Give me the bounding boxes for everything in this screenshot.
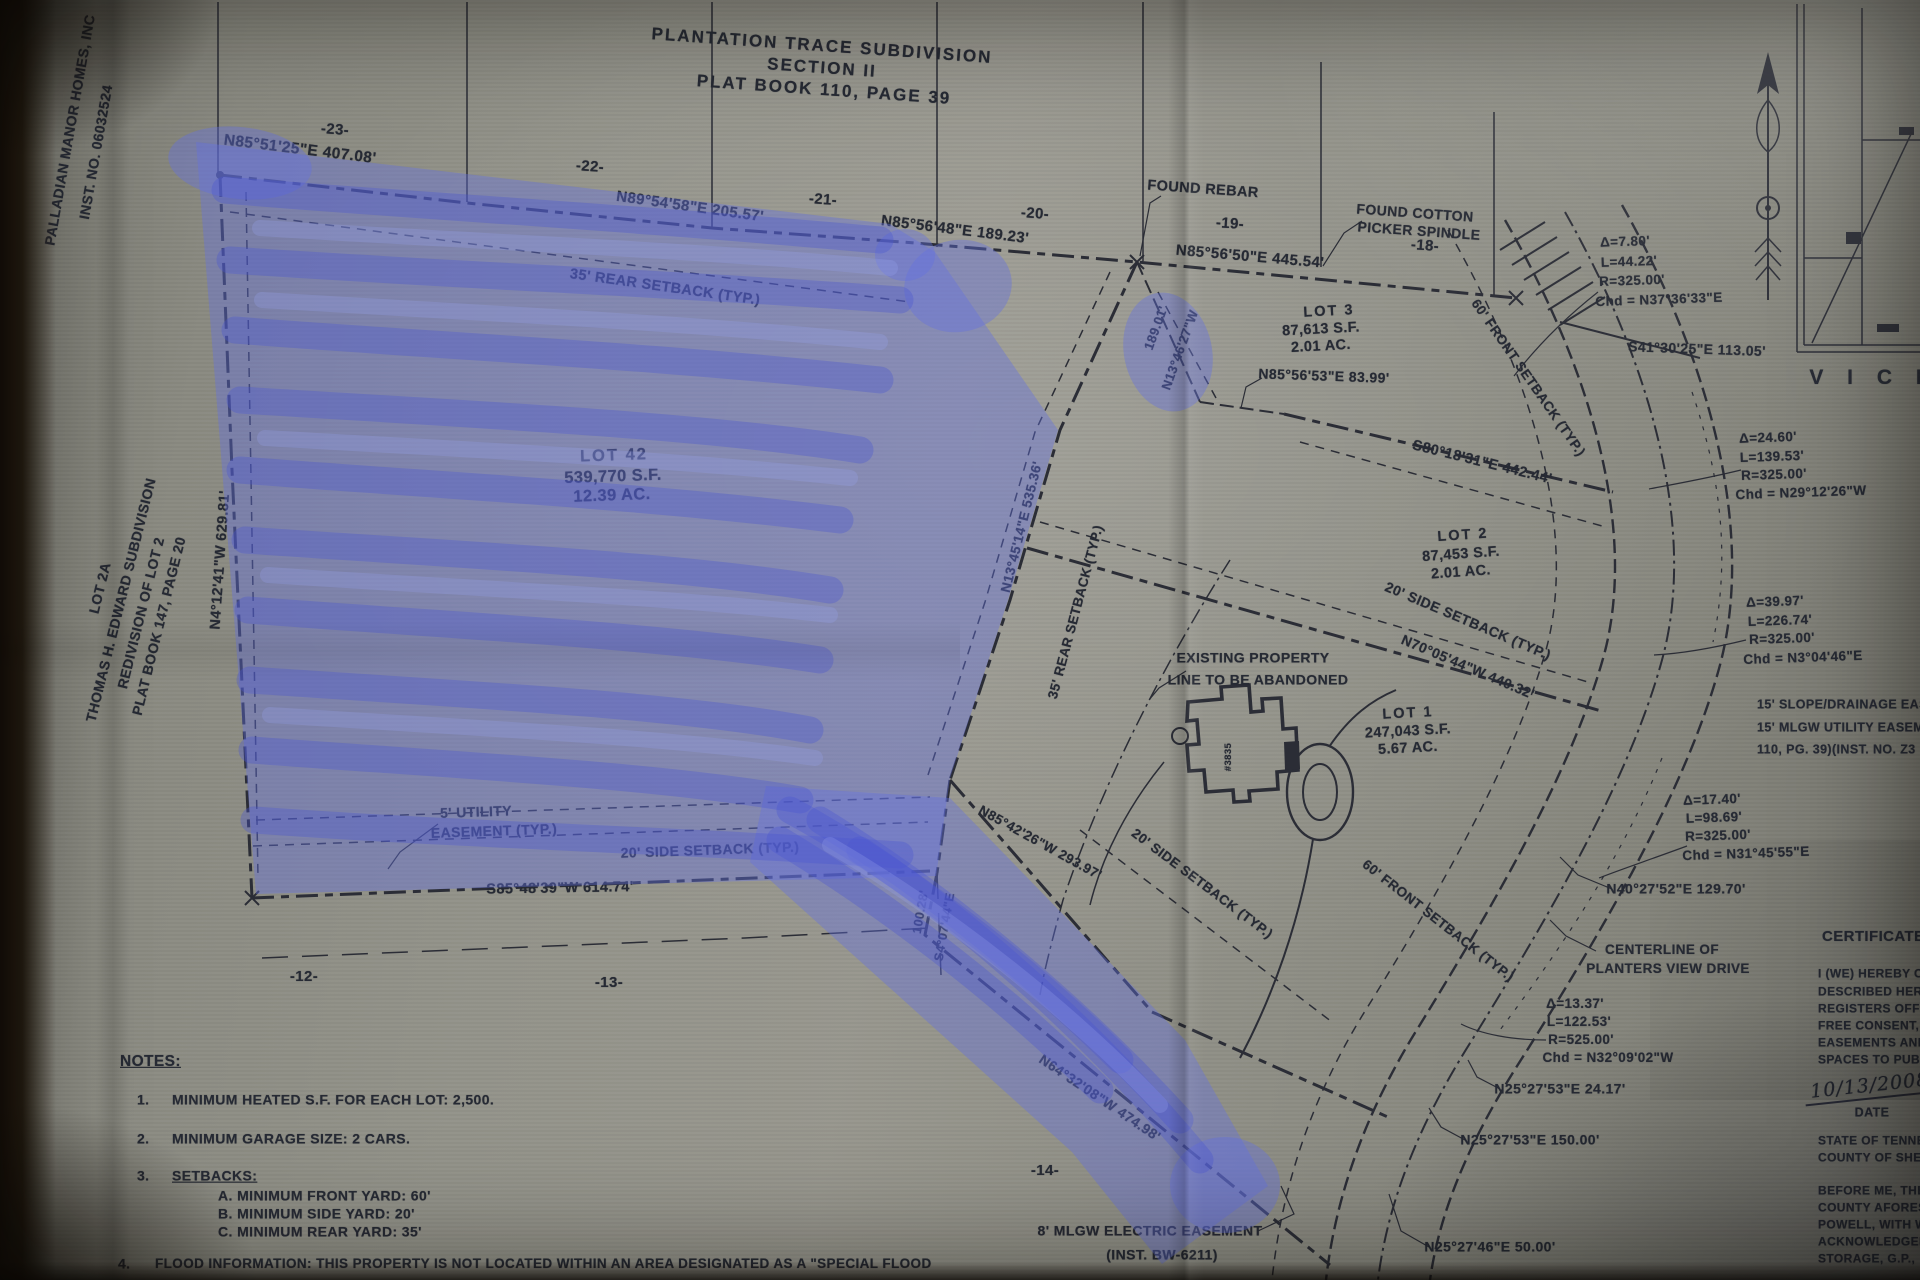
bearing-n40: N40°27'52"E 129.70' bbox=[1606, 882, 1745, 897]
bearing-north-1: N85°51'25"E 407.08' bbox=[223, 133, 377, 168]
state-line-1: STATE OF TENNE bbox=[1818, 1135, 1920, 1148]
lot42-acres: 12.39 AC. bbox=[573, 486, 651, 506]
curve4-radius: R=325.00' bbox=[1685, 828, 1751, 844]
lot1-acres: 5.67 AC. bbox=[1378, 740, 1439, 758]
bearing-n1345: N13°45'14"E 535.36' bbox=[999, 460, 1045, 594]
slope-easement-2: 15' MLGW UTILITY EASEMEN bbox=[1757, 721, 1920, 734]
curve5-radius: R=525.00' bbox=[1548, 1033, 1614, 1047]
note-3-num: 3. bbox=[137, 1169, 149, 1184]
bearing-lot3-south: N85°56'53"E 83.99' bbox=[1258, 366, 1390, 385]
bearing-s80: S80°18'31"E 442.44' bbox=[1411, 438, 1554, 487]
curve3-length: L=226.74' bbox=[1748, 613, 1813, 629]
curve3-chord: Chd = N3°04'46"E bbox=[1743, 649, 1863, 667]
signature-date: 10/13/2008 bbox=[1803, 1070, 1920, 1107]
bearing-north-2: N89°54'58"E 205.57' bbox=[615, 189, 765, 225]
plat-photo: PLANTATION TRACE SUBDIVISIONSECTION IIPL… bbox=[0, 0, 1920, 1280]
curve5-chord: Chd = N32°09'02"W bbox=[1543, 1051, 1674, 1065]
note-4-num: 4. bbox=[118, 1257, 130, 1272]
lot3-name: LOT 3 bbox=[1303, 303, 1355, 321]
bearing-n8542: N85°42'26"W 293.97' bbox=[976, 803, 1104, 882]
curve1-radius: R=325.00' bbox=[1599, 273, 1665, 289]
certificate-line-1: I (WE) HEREBY C bbox=[1818, 968, 1920, 981]
plat-labels: PLANTATION TRACE SUBDIVISIONSECTION IIPL… bbox=[0, 0, 1920, 1280]
certificate-line-5: EASEMENTS AND bbox=[1818, 1037, 1920, 1050]
lot3-acres: 2.01 AC. bbox=[1291, 338, 1352, 356]
bearing-s8548: S85°48'39"W 614.74' bbox=[486, 880, 634, 898]
curve4-length: L=98.69' bbox=[1686, 810, 1743, 826]
certificate-heading: CERTIFICATE O bbox=[1822, 929, 1920, 945]
note-3b-text: B. MINIMUM SIDE YARD: 20' bbox=[218, 1207, 415, 1222]
certificate-line-2: DESCRIBED HERE bbox=[1818, 986, 1920, 999]
certificate-line-6: SPACES TO PUBL bbox=[1818, 1054, 1920, 1067]
bearing-north-4: N85°56'50"E 445.54' bbox=[1175, 243, 1325, 272]
notes-heading: NOTES: bbox=[120, 1054, 181, 1070]
slope-easement-1: 15' SLOPE/DRAINAGE EASE bbox=[1757, 698, 1920, 711]
date-label: DATE bbox=[1855, 1106, 1890, 1119]
dist-10028: 100.28' bbox=[911, 889, 932, 935]
lot42-name: LOT 42 bbox=[580, 446, 649, 466]
curve1-chord: Chd = N37°36'33"E bbox=[1595, 291, 1723, 310]
certificate-line-3: REGISTERS OFFIC bbox=[1818, 1003, 1920, 1016]
grid-14: -14- bbox=[1031, 1163, 1059, 1179]
curve4-chord: Chd = N31°45'55"E bbox=[1682, 845, 1810, 864]
bearing-n25-50: N25°27'46"E 50.00' bbox=[1424, 1240, 1555, 1255]
curve4-delta: Δ=17.40' bbox=[1683, 792, 1741, 808]
bearing-west: N4°12'41"W 629.81' bbox=[209, 490, 234, 630]
rear-setback-top: 35' REAR SETBACK (TYP.) bbox=[569, 267, 761, 309]
grid-20: -20- bbox=[1020, 205, 1049, 223]
note-3-text: SETBACKS: bbox=[172, 1169, 257, 1184]
grid-13: -13- bbox=[595, 975, 623, 991]
utility-easement-2: EASEMENT (TYP.) bbox=[431, 821, 558, 840]
note-1-num: 1. bbox=[137, 1093, 149, 1108]
rear-setback-diagonal: 35' REAR SETBACK (TYP.) bbox=[1046, 523, 1106, 700]
notary-line-5: STORAGE, G.P., bbox=[1818, 1253, 1915, 1266]
note-3c-text: C. MINIMUM REAR YARD: 35' bbox=[218, 1225, 422, 1240]
centerline-label-1: CENTERLINE OF bbox=[1605, 943, 1719, 957]
curve1-delta: Δ=7.80' bbox=[1600, 234, 1650, 250]
certificate-line-4: FREE CONSENT, E bbox=[1818, 1020, 1920, 1033]
grid-22: -22- bbox=[575, 158, 604, 176]
title-line-3: PLAT BOOK 110, PAGE 39 bbox=[696, 72, 952, 108]
vicinity-caption: V I C I bbox=[1809, 367, 1920, 389]
slope-easement-3: 110, PG. 39)(INST. NO. Z3 bbox=[1757, 743, 1916, 756]
house-number: #3835 bbox=[1224, 743, 1234, 771]
notary-line-3: POWELL, WITH W bbox=[1818, 1219, 1920, 1232]
curve2-delta: Δ=24.60' bbox=[1739, 430, 1797, 446]
note-4-text: FLOOD INFORMATION: THIS PROPERTY IS NOT … bbox=[155, 1257, 932, 1271]
centerline-label-2: PLANTERS VIEW DRIVE bbox=[1586, 962, 1750, 976]
curve3-delta: Δ=39.97' bbox=[1746, 594, 1804, 610]
existing-line-label-2: LINE TO BE ABANDONED bbox=[1168, 673, 1349, 688]
notary-line-2: COUNTY AFORESA bbox=[1818, 1202, 1920, 1215]
curve5-delta: Δ=13.37' bbox=[1546, 997, 1604, 1011]
grid-23: -23- bbox=[320, 121, 349, 139]
utility-easement-1: 5' UTILITY bbox=[440, 803, 512, 820]
lot1-name: LOT 1 bbox=[1382, 705, 1434, 723]
note-2-text: MINIMUM GARAGE SIZE: 2 CARS. bbox=[172, 1132, 410, 1147]
lot2-acres: 2.01 AC. bbox=[1431, 563, 1492, 582]
grid-21: -21- bbox=[808, 191, 837, 209]
side-setback-lot42: 20' SIDE SETBACK (TYP.) bbox=[620, 840, 799, 861]
bearing-n64: N64°32'08"W 474.98' bbox=[1037, 1052, 1164, 1144]
note-3a-text: A. MINIMUM FRONT YARD: 60' bbox=[218, 1189, 431, 1204]
adjacent-lot2a: LOT 2A bbox=[87, 561, 114, 615]
bearing-s407: S4°07'44"E bbox=[933, 892, 958, 963]
grid-19: -19- bbox=[1215, 215, 1244, 233]
curve1-length: L=44.22' bbox=[1601, 254, 1658, 270]
bearing-n25-150: N25°27'53"E 150.00' bbox=[1460, 1133, 1599, 1148]
mlgw-easement-2: (INST. BW-6211) bbox=[1106, 1248, 1218, 1263]
notary-line-1: BEFORE ME, THE bbox=[1818, 1185, 1920, 1198]
lot2-name: LOT 2 bbox=[1437, 527, 1489, 546]
front-setback-upper: 60' FRONT SETBACK (TYP.) bbox=[1468, 297, 1587, 459]
curve5-length: L=122.53' bbox=[1547, 1015, 1611, 1029]
curve2-length: L=139.53' bbox=[1740, 449, 1805, 465]
curve3-radius: R=325.00' bbox=[1749, 631, 1815, 647]
existing-line-label-1: EXISTING PROPERTY bbox=[1176, 651, 1329, 666]
curve2-chord: Chd = N29°12'26"W bbox=[1735, 484, 1866, 503]
found-rebar-label: FOUND REBAR bbox=[1147, 179, 1259, 202]
note-1-text: MINIMUM HEATED S.F. FOR EACH LOT: 2,500. bbox=[172, 1093, 494, 1108]
bearing-north-3: N85°56'48"E 189.23' bbox=[880, 213, 1030, 247]
notary-line-4: ACKNOWLEDGED bbox=[1818, 1236, 1920, 1249]
mlgw-easement-1: 8' MLGW ELECTRIC EASEMENT bbox=[1038, 1224, 1263, 1239]
curve2-radius: R=325.00' bbox=[1741, 467, 1807, 483]
dist-189: 189.01' bbox=[1142, 304, 1170, 352]
owner-inst-no: INST. NO. 06032524 bbox=[77, 84, 115, 221]
front-setback-lower: 60' FRONT SETBACK (TYP.) bbox=[1360, 858, 1517, 985]
side-setback-lot1: 20' SIDE SETBACK (TYP.) bbox=[1129, 826, 1275, 941]
state-line-2: COUNTY OF SHEL bbox=[1818, 1152, 1920, 1165]
note-2-num: 2. bbox=[137, 1132, 149, 1147]
lot1-area: 247,043 S.F. bbox=[1365, 722, 1452, 742]
grid-12: -12- bbox=[290, 969, 318, 985]
bearing-s41: S41°30'25"E 113.05' bbox=[1628, 339, 1766, 358]
bearing-n25-2417: N25°27'53"E 24.17' bbox=[1494, 1082, 1625, 1097]
